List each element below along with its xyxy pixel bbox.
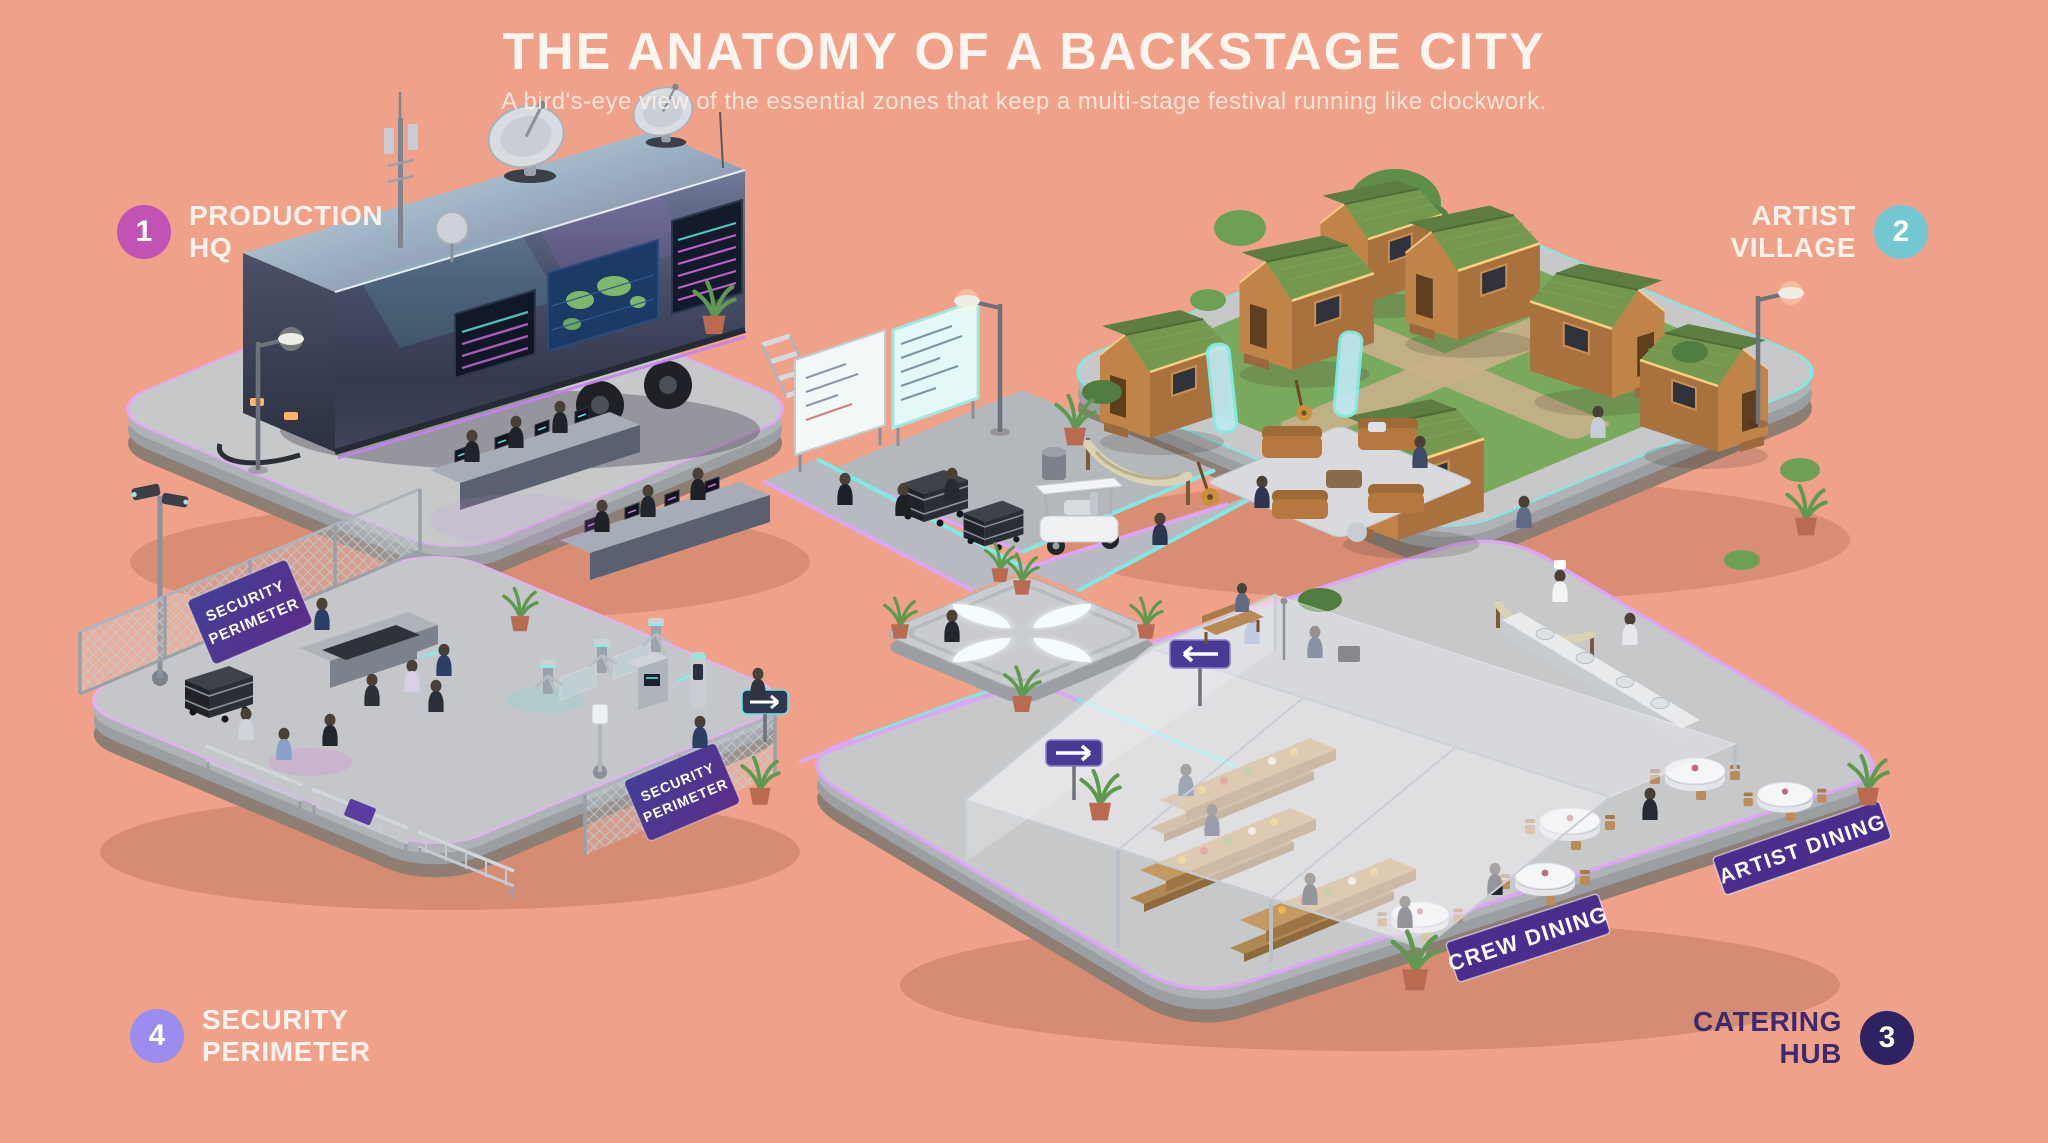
zone-label-line2: VILLAGE [1730, 232, 1856, 264]
zone-label-line1: CATERING [1693, 1006, 1842, 1038]
zone-badge-3: 3 [1860, 1011, 1914, 1065]
sofa [1358, 418, 1418, 450]
sofa [1272, 490, 1328, 519]
backstage-city-illustration: SECURITY PERIMETER SECURITY PERIMETER [0, 0, 2048, 1143]
zone-label-security-perimeter: 4 SECURITY PERIMETER [130, 1004, 371, 1068]
whiteboard [795, 330, 885, 472]
zone-label-catering-hub: CATERING HUB 3 [1693, 1006, 1914, 1070]
broadcast-truck [243, 81, 745, 458]
zone-label-line2: HUB [1693, 1038, 1842, 1070]
zone-label-line1: SECURITY [202, 1004, 371, 1036]
person-figure [750, 668, 765, 700]
zone-label-text: SECURITY PERIMETER [202, 1004, 371, 1068]
sofa [1262, 426, 1322, 458]
pouf [1347, 522, 1367, 542]
zone-label-production-hq: 1 PRODUCTION HQ [117, 200, 383, 264]
sofa [1368, 484, 1424, 513]
zone-label-line2: HQ [189, 232, 383, 264]
zone-label-line2: PERIMETER [202, 1036, 371, 1068]
info-totem [690, 652, 706, 708]
page-title: THE ANATOMY OF A BACKSTAGE CITY [0, 22, 2048, 82]
zone-label-text: CATERING HUB [1693, 1006, 1842, 1070]
zone-label-text: PRODUCTION HQ [189, 200, 383, 264]
zone-label-artist-village: ARTIST VILLAGE 2 [1730, 200, 1928, 264]
trash-bin [1042, 447, 1066, 480]
chef-hat [1554, 560, 1566, 569]
tree [1214, 210, 1266, 246]
page-subtitle: A bird's-eye view of the essential zones… [0, 88, 2048, 116]
zone-badge-4: 4 [130, 1009, 184, 1063]
coffee-table [1326, 470, 1362, 488]
zone-label-line1: PRODUCTION [189, 200, 383, 232]
zone-label-text: ARTIST VILLAGE [1730, 200, 1856, 264]
zone-badge-2: 2 [1874, 205, 1928, 259]
zone-label-line1: ARTIST [1730, 200, 1856, 232]
zone-badge-1: 1 [117, 205, 171, 259]
